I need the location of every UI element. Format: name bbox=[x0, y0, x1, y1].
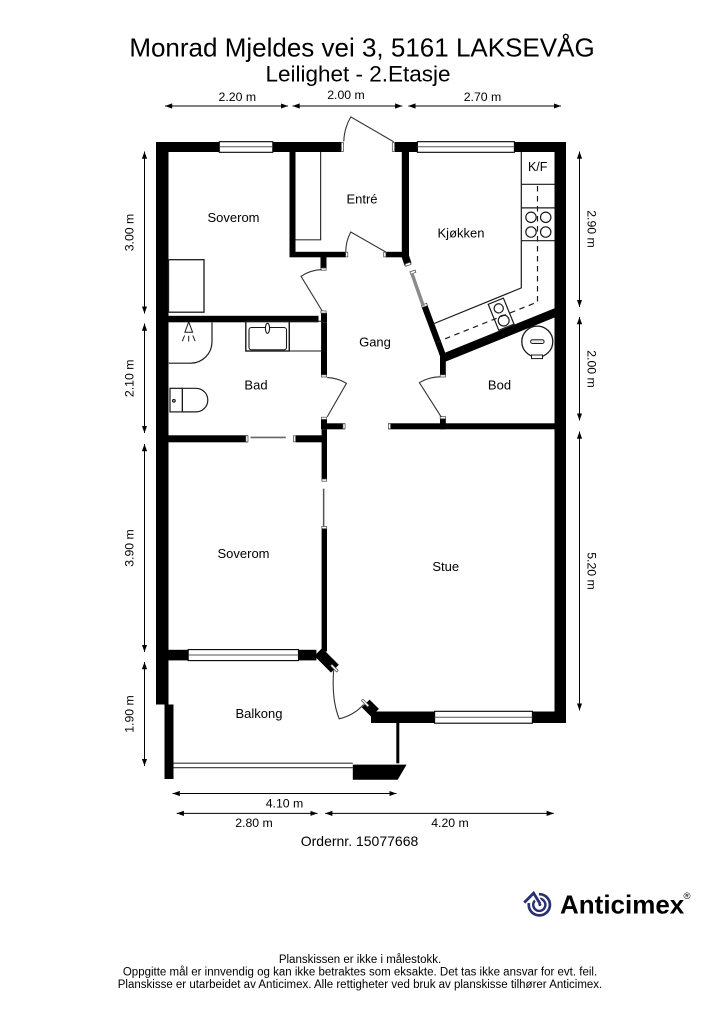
svg-text:®: ® bbox=[684, 891, 691, 902]
svg-text:Balkong: Balkong bbox=[236, 706, 283, 721]
svg-text:Planskisse er utarbeidet av An: Planskisse er utarbeidet av Anticimex. A… bbox=[118, 979, 603, 991]
svg-text:2.20 m: 2.20 m bbox=[219, 90, 257, 104]
svg-text:2.80 m: 2.80 m bbox=[235, 816, 273, 830]
svg-text:Ordernr. 15077668: Ordernr. 15077668 bbox=[301, 833, 419, 849]
svg-text:2.00 m: 2.00 m bbox=[585, 350, 599, 388]
svg-text:2.70 m: 2.70 m bbox=[464, 90, 502, 104]
svg-text:Gang: Gang bbox=[359, 334, 391, 349]
svg-text:Planskissen er ikke i målestok: Planskissen er ikke i målestokk. bbox=[279, 954, 441, 966]
svg-text:Soverom: Soverom bbox=[207, 210, 259, 225]
svg-text:3.00 m: 3.00 m bbox=[123, 214, 137, 252]
svg-text:Kjøkken: Kjøkken bbox=[438, 225, 485, 240]
svg-text:Monrad Mjeldes vei 3, 5161 LAK: Monrad Mjeldes vei 3, 5161 LAKSEVÅG bbox=[129, 33, 594, 63]
svg-text:3.90 m: 3.90 m bbox=[123, 529, 137, 567]
svg-text:Leilighet - 2.Etasje: Leilighet - 2.Etasje bbox=[265, 62, 450, 87]
svg-text:K/F: K/F bbox=[528, 160, 548, 174]
svg-text:Entré: Entré bbox=[346, 192, 377, 207]
svg-text:Anticimex: Anticimex bbox=[560, 889, 685, 919]
svg-text:4.20 m: 4.20 m bbox=[431, 816, 469, 830]
svg-text:Stue: Stue bbox=[432, 559, 459, 574]
svg-text:2.00 m: 2.00 m bbox=[327, 88, 365, 102]
svg-text:1.90 m: 1.90 m bbox=[123, 695, 137, 733]
svg-text:Oppgitte mål er innvendig og k: Oppgitte mål er innvendig og kan ikke be… bbox=[123, 967, 597, 979]
svg-text:Bad: Bad bbox=[244, 378, 267, 393]
svg-text:2.90 m: 2.90 m bbox=[585, 210, 599, 248]
svg-text:4.10 m: 4.10 m bbox=[266, 796, 304, 810]
svg-text:Bod: Bod bbox=[488, 378, 511, 393]
svg-text:5.20 m: 5.20 m bbox=[585, 552, 599, 590]
svg-text:2.10 m: 2.10 m bbox=[123, 360, 137, 398]
svg-text:Soverom: Soverom bbox=[217, 546, 269, 561]
